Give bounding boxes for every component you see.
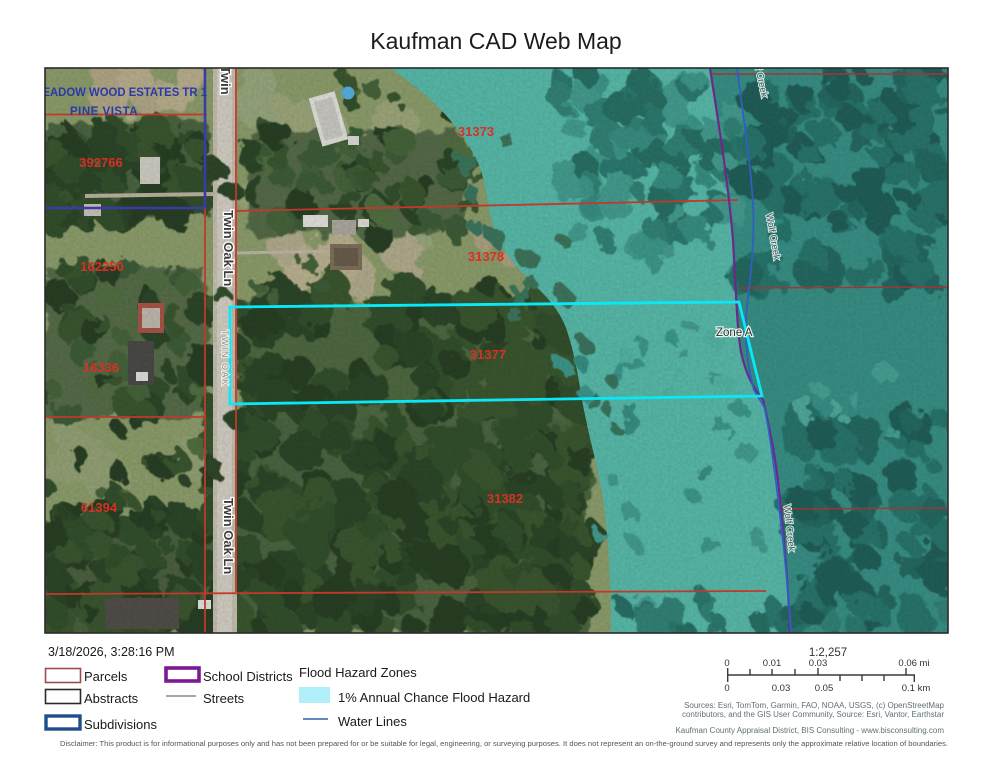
svg-text:16336: 16336 bbox=[83, 360, 119, 375]
svg-text:Disclaimer: This product is fo: Disclaimer: This product is for informat… bbox=[60, 739, 948, 748]
svg-text:0.01: 0.01 bbox=[763, 658, 782, 669]
svg-text:Water Lines: Water Lines bbox=[338, 714, 407, 729]
svg-text:31382: 31382 bbox=[487, 491, 523, 506]
svg-text:Abstracts: Abstracts bbox=[84, 691, 139, 706]
svg-text:Twin Oak Ln: Twin Oak Ln bbox=[221, 210, 236, 286]
svg-text:0: 0 bbox=[724, 658, 729, 669]
svg-text:Twin Oak Ln: Twin Oak Ln bbox=[221, 498, 236, 574]
svg-text:MEADOW WOOD ESTATES TR 1: MEADOW WOOD ESTATES TR 1 bbox=[33, 87, 208, 99]
svg-text:Twin: Twin bbox=[218, 66, 233, 95]
svg-text:31378: 31378 bbox=[468, 249, 504, 264]
svg-text:0.03: 0.03 bbox=[772, 683, 791, 694]
svg-text:PINE VISTA: PINE VISTA bbox=[70, 106, 138, 118]
svg-text:31377: 31377 bbox=[470, 347, 506, 362]
svg-text:0.06 mi: 0.06 mi bbox=[898, 658, 929, 669]
svg-text:3/18/2026, 3:28:16 PM: 3/18/2026, 3:28:16 PM bbox=[48, 645, 174, 659]
svg-text:31373: 31373 bbox=[458, 124, 494, 139]
svg-text:0.1 km: 0.1 km bbox=[902, 683, 931, 694]
svg-text:Flood Hazard Zones: Flood Hazard Zones bbox=[299, 665, 417, 680]
svg-text:0.05: 0.05 bbox=[815, 683, 834, 694]
svg-text:TWIN OAK: TWIN OAK bbox=[220, 330, 230, 387]
svg-text:Kaufman CAD Web Map: Kaufman CAD Web Map bbox=[370, 28, 621, 54]
svg-text:Parcels: Parcels bbox=[84, 669, 128, 684]
svg-text:0: 0 bbox=[724, 683, 729, 694]
svg-text:Streets: Streets bbox=[203, 691, 245, 706]
svg-text:School Districts: School Districts bbox=[203, 669, 293, 684]
svg-text:392766: 392766 bbox=[79, 155, 122, 170]
svg-text:contributors, and the GIS User: contributors, and the GIS User Community… bbox=[682, 710, 944, 719]
svg-text:0.03: 0.03 bbox=[809, 658, 828, 669]
svg-text:61394: 61394 bbox=[81, 500, 118, 515]
svg-text:Subdivisions: Subdivisions bbox=[84, 717, 157, 732]
svg-text:Sources: Esri, TomTom, Garmin: Sources: Esri, TomTom, Garmin, FAO, NOAA… bbox=[684, 701, 944, 710]
svg-text:Zone A: Zone A bbox=[716, 327, 753, 339]
svg-text:Kaufman County Appraisal Distr: Kaufman County Appraisal District, BIS C… bbox=[675, 726, 944, 735]
svg-text:1% Annual Chance Flood Hazard: 1% Annual Chance Flood Hazard bbox=[338, 690, 530, 705]
svg-text:162250: 162250 bbox=[80, 259, 123, 274]
